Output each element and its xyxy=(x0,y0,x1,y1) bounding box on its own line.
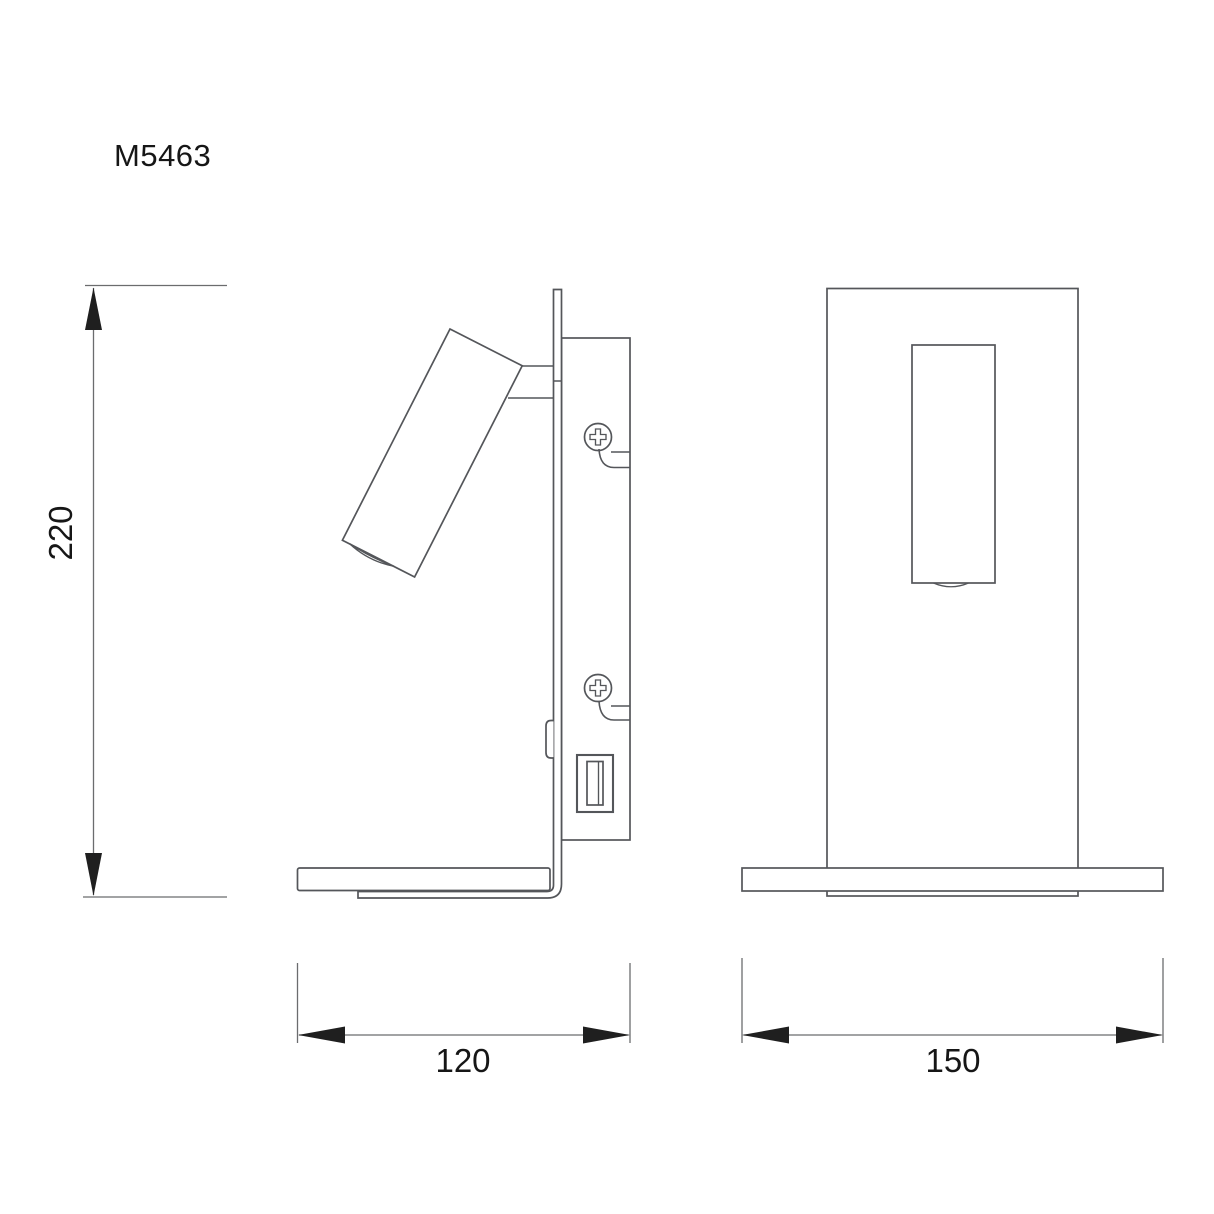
front-shelf xyxy=(742,868,1163,891)
depth-arrow-right-icon xyxy=(583,1027,630,1044)
depth-arrow-left-icon xyxy=(298,1027,345,1044)
side-shelf xyxy=(298,868,551,891)
upper-screw-icon xyxy=(585,424,612,451)
lower-screw-icon xyxy=(585,675,612,702)
usb-port-inner xyxy=(587,762,603,806)
dimension-height-220 xyxy=(83,286,227,898)
wall-lamp-dimension-drawing xyxy=(0,0,1214,1214)
front-view xyxy=(742,289,1163,897)
power-switch xyxy=(546,721,554,759)
dimension-width-150 xyxy=(742,958,1163,1044)
width-arrow-right-icon xyxy=(1116,1027,1163,1044)
front-lamp-head xyxy=(912,345,995,583)
side-view xyxy=(298,290,631,899)
technical-drawing-page: M5463 xyxy=(0,0,1214,1214)
dimension-depth-120 xyxy=(298,963,631,1044)
width-dimension-value: 150 xyxy=(903,1042,1003,1080)
height-arrow-down-icon xyxy=(85,853,102,896)
height-arrow-up-icon xyxy=(85,288,102,331)
width-arrow-left-icon xyxy=(742,1027,789,1044)
depth-dimension-value: 120 xyxy=(413,1042,513,1080)
height-dimension-value: 220 xyxy=(42,493,76,573)
side-lamp-head xyxy=(342,329,522,577)
